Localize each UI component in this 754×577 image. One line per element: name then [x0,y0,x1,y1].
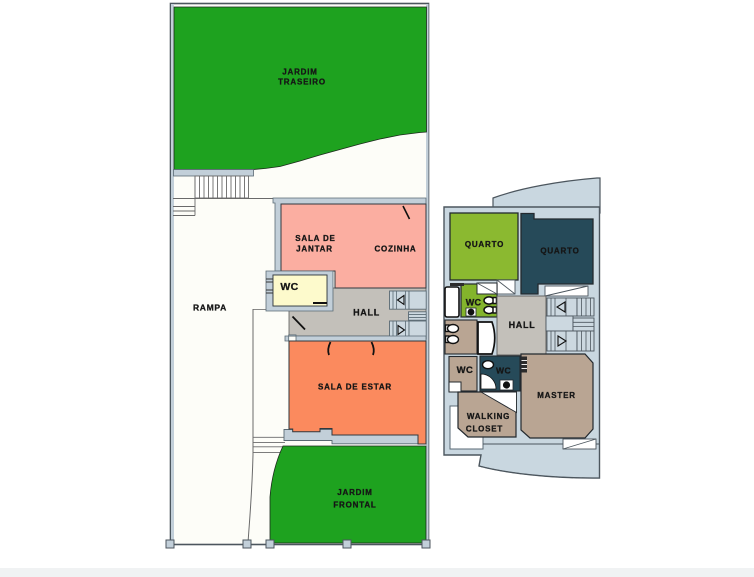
svg-text:MASTER: MASTER [537,391,576,400]
svg-text:WC: WC [457,365,474,376]
svg-text:FRONTAL: FRONTAL [333,500,376,509]
svg-text:WC: WC [466,297,482,307]
svg-text:TRASEIRO: TRASEIRO [278,78,326,87]
svg-text:WC: WC [496,366,511,376]
svg-text:CLOSET: CLOSET [466,425,503,434]
svg-text:SALA DE ESTAR: SALA DE ESTAR [318,382,392,391]
svg-text:JARDIM: JARDIM [282,68,317,77]
svg-text:JARDIM: JARDIM [337,488,372,497]
svg-text:SALA DE: SALA DE [295,234,335,243]
svg-text:HALL: HALL [509,320,536,330]
svg-text:RAMPA: RAMPA [193,303,227,313]
svg-text:QUARTO: QUARTO [465,240,504,249]
svg-text:WALKING: WALKING [467,412,510,421]
svg-text:WC: WC [280,281,298,293]
svg-text:COZINHA: COZINHA [374,244,416,253]
svg-text:JANTAR: JANTAR [296,244,333,253]
svg-text:HALL: HALL [353,308,380,318]
svg-text:QUARTO: QUARTO [540,247,579,256]
